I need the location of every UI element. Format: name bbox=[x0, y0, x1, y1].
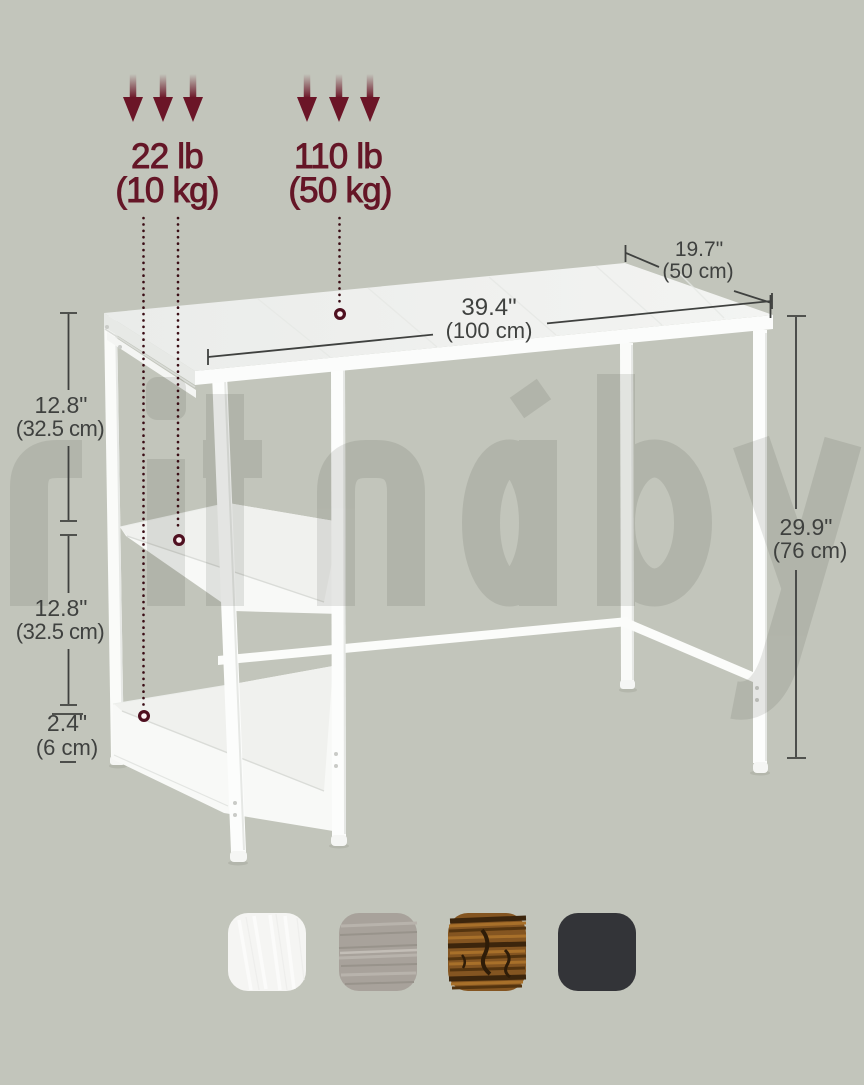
svg-text:29.9": 29.9" bbox=[780, 514, 833, 540]
svg-text:39.4": 39.4" bbox=[461, 294, 516, 321]
svg-text:(76 cm): (76 cm) bbox=[773, 538, 848, 563]
svg-text:(10 kg): (10 kg) bbox=[115, 171, 218, 210]
svg-text:(50 cm): (50 cm) bbox=[662, 260, 733, 283]
svg-text:(100 cm): (100 cm) bbox=[446, 318, 533, 343]
svg-text:2.4": 2.4" bbox=[47, 710, 87, 736]
svg-text:12.8": 12.8" bbox=[35, 595, 88, 621]
svg-text:(32.5 cm): (32.5 cm) bbox=[16, 416, 104, 441]
svg-text:(32.5 cm): (32.5 cm) bbox=[16, 619, 104, 644]
svg-text:12.8": 12.8" bbox=[35, 392, 88, 418]
svg-text:(50 kg): (50 kg) bbox=[288, 171, 391, 210]
svg-text:(6 cm): (6 cm) bbox=[36, 735, 98, 760]
svg-text:19.7": 19.7" bbox=[675, 238, 723, 261]
